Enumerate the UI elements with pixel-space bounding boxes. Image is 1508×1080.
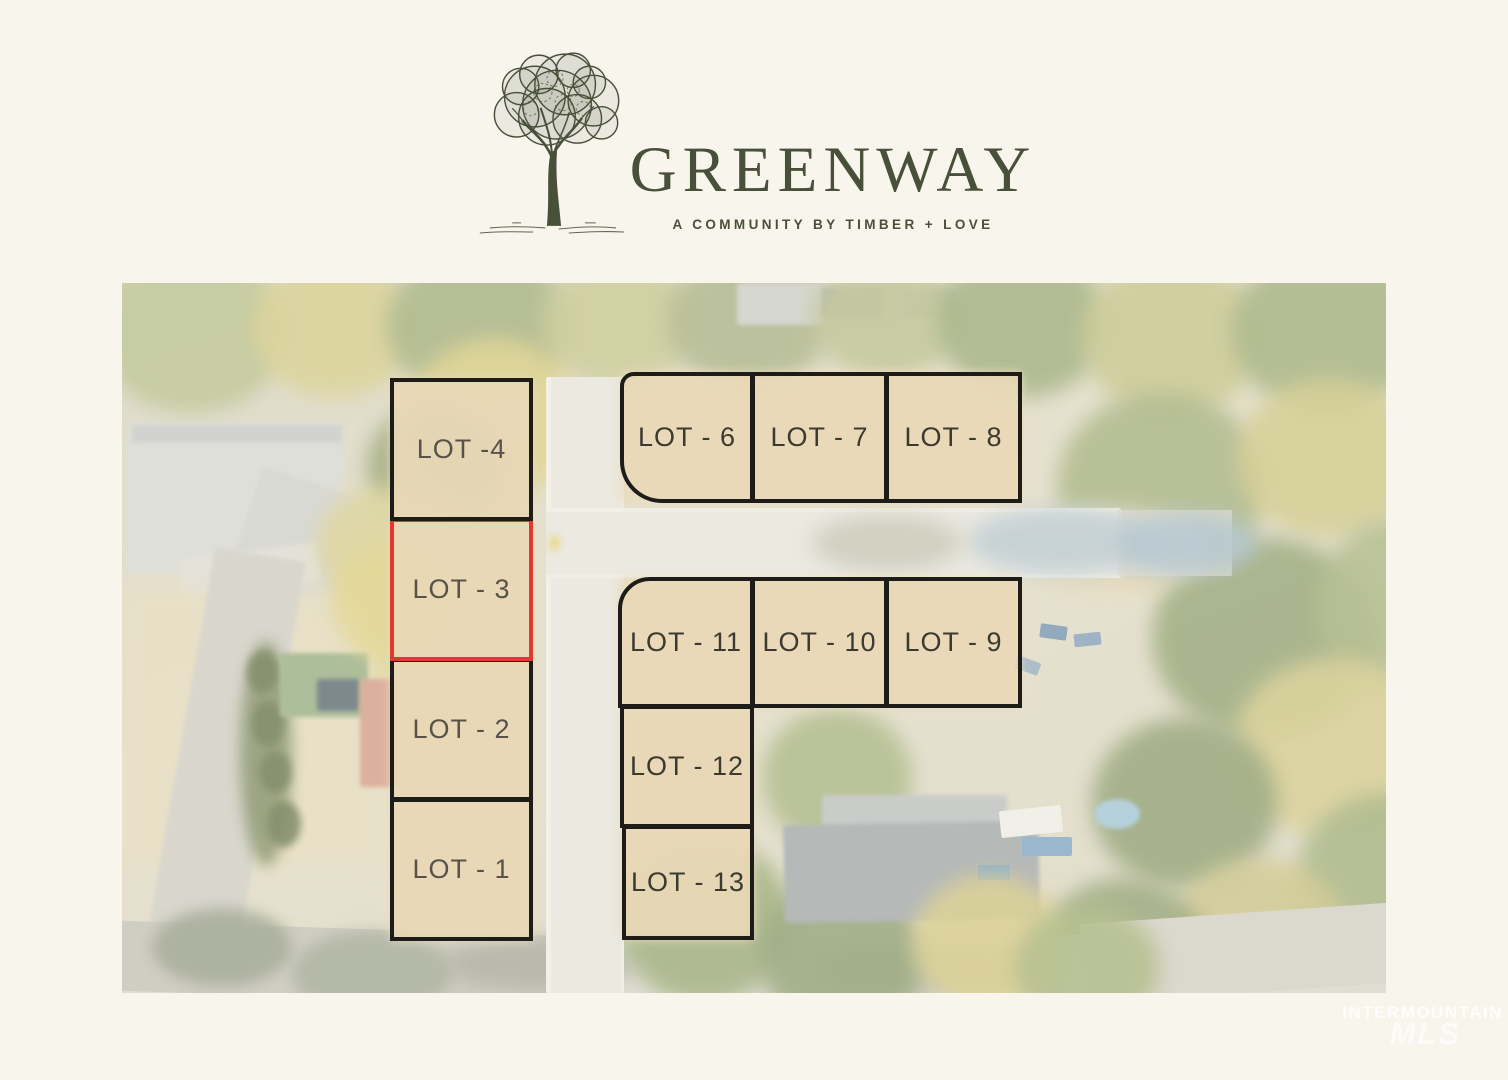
lot-12: LOT - 12: [620, 705, 754, 828]
lot-11: LOT - 11: [618, 577, 754, 708]
lot-13-label: LOT - 13: [631, 867, 745, 898]
flyer: GREENWAY A COMMUNITY BY TIMBER + LOVE: [0, 0, 1508, 1080]
tree-logo-icon: [472, 42, 634, 234]
lot-2: LOT - 2: [390, 658, 533, 801]
brand-text: GREENWAY A COMMUNITY BY TIMBER + LOVE: [630, 138, 1037, 234]
lot-4-label: LOT -4: [417, 434, 507, 465]
aerial-photo: LOT - 1 LOT - 2 LOT - 3 LOT -4 LOT - 6 L…: [122, 283, 1386, 993]
lot-13: LOT - 13: [622, 825, 754, 940]
lot-9-label: LOT - 9: [904, 627, 1002, 658]
lot-7-label: LOT - 7: [770, 422, 868, 453]
lot-9: LOT - 9: [885, 577, 1022, 708]
watermark-line2: MLS: [1342, 1016, 1503, 1052]
lot-8-label: LOT - 8: [904, 422, 1002, 453]
lot-1-label: LOT - 1: [412, 854, 510, 885]
lot-10: LOT - 10: [751, 577, 888, 708]
lot-6: LOT - 6: [620, 372, 754, 503]
lot-7: LOT - 7: [751, 372, 888, 503]
mls-watermark: INTERMOUNTAIN MLS: [1342, 1003, 1503, 1052]
lot-3-highlighted: LOT - 3: [390, 518, 533, 661]
lot-4: LOT -4: [390, 378, 533, 521]
lot-overlay: LOT - 1 LOT - 2 LOT - 3 LOT -4 LOT - 6 L…: [122, 283, 1386, 993]
lot-6-label: LOT - 6: [638, 422, 736, 453]
brand-subtitle: A COMMUNITY BY TIMBER + LOVE: [672, 217, 993, 232]
lot-1: LOT - 1: [390, 798, 533, 941]
lot-3-label: LOT - 3: [412, 574, 510, 605]
lot-12-label: LOT - 12: [630, 751, 744, 782]
lot-2-label: LOT - 2: [412, 714, 510, 745]
brand-title: GREENWAY: [630, 138, 1037, 203]
lot-11-label: LOT - 11: [630, 627, 742, 658]
brand-header: GREENWAY A COMMUNITY BY TIMBER + LOVE: [0, 42, 1508, 234]
lot-10-label: LOT - 10: [762, 627, 876, 658]
lot-8: LOT - 8: [885, 372, 1022, 503]
